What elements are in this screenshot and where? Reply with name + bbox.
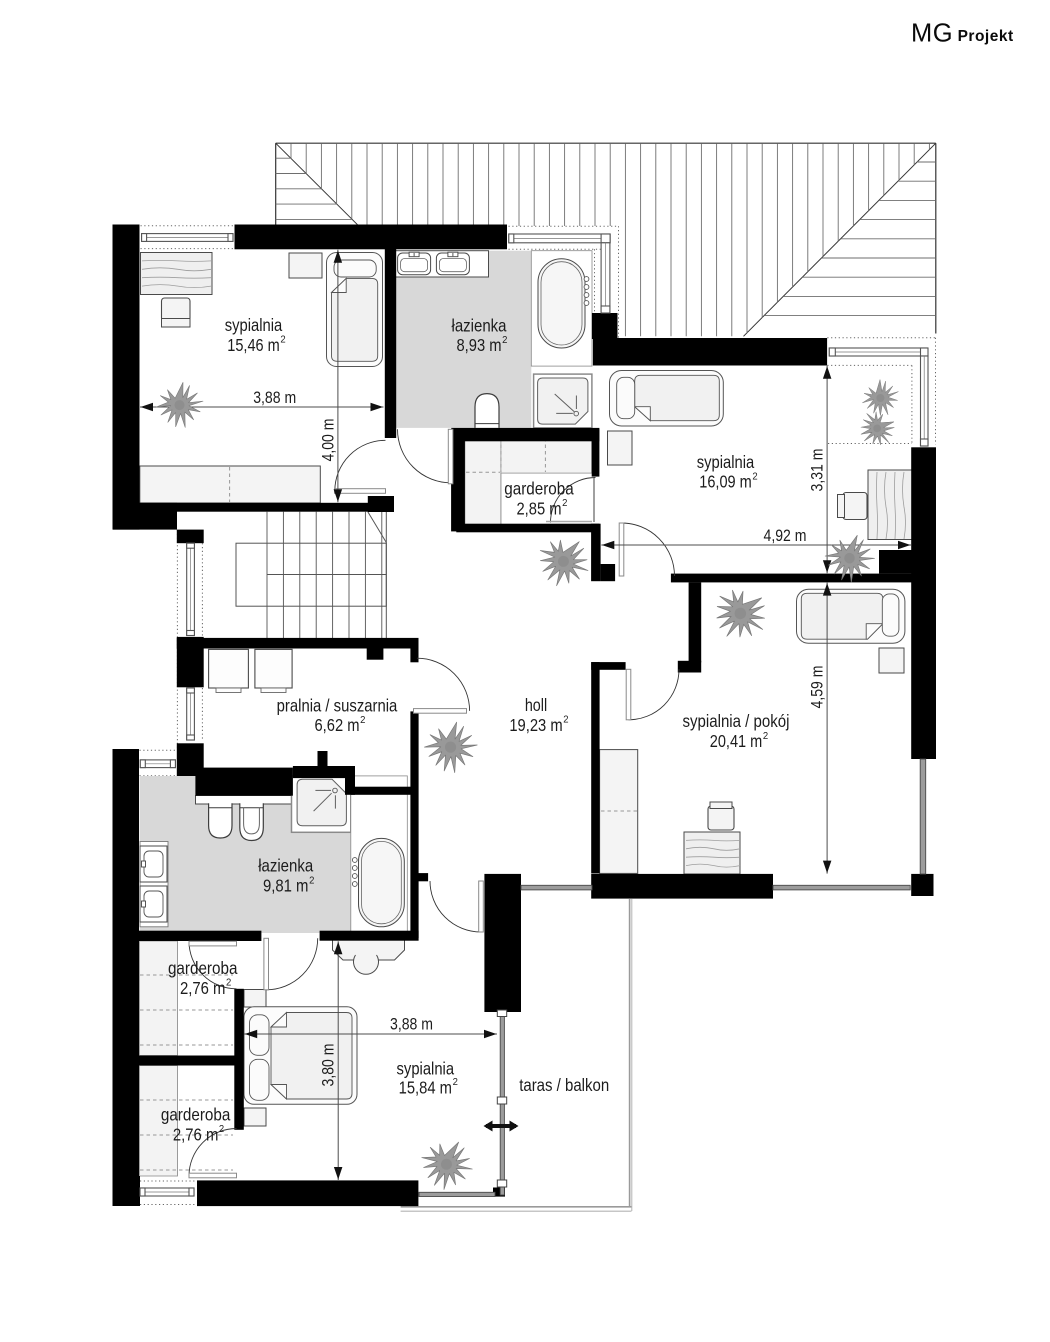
svg-text:2: 2 xyxy=(226,977,231,989)
svg-text:pralnia / suszarnia: pralnia / suszarnia xyxy=(277,695,398,715)
svg-text:4,92 m: 4,92 m xyxy=(764,526,807,545)
svg-text:15,46 m: 15,46 m xyxy=(227,335,280,355)
svg-text:2,76 m: 2,76 m xyxy=(173,1124,219,1144)
svg-text:19,23 m: 19,23 m xyxy=(509,715,562,735)
svg-text:20,41 m: 20,41 m xyxy=(710,731,763,751)
svg-text:4,59 m: 4,59 m xyxy=(807,666,826,709)
svg-text:9,81 m: 9,81 m xyxy=(263,876,309,896)
svg-text:2: 2 xyxy=(752,470,757,482)
svg-text:sypialnia: sypialnia xyxy=(397,1058,455,1078)
svg-text:łazienka: łazienka xyxy=(258,856,313,876)
svg-text:3,80 m: 3,80 m xyxy=(319,1044,338,1087)
svg-text:taras / balkon: taras / balkon xyxy=(519,1075,609,1095)
svg-text:2: 2 xyxy=(763,730,768,742)
svg-text:15,84 m: 15,84 m xyxy=(399,1077,452,1097)
svg-text:2: 2 xyxy=(309,874,314,886)
svg-text:sypialnia: sypialnia xyxy=(225,315,283,335)
svg-text:2,85 m: 2,85 m xyxy=(517,498,562,518)
svg-text:2: 2 xyxy=(219,1123,224,1135)
svg-text:16,09 m: 16,09 m xyxy=(699,472,752,492)
svg-text:2: 2 xyxy=(280,334,285,346)
svg-text:holl: holl xyxy=(525,695,547,715)
svg-text:2: 2 xyxy=(360,714,365,726)
svg-text:garderoba: garderoba xyxy=(161,1105,231,1125)
svg-text:2: 2 xyxy=(563,714,568,726)
svg-text:2: 2 xyxy=(562,497,567,509)
svg-text:8,93 m: 8,93 m xyxy=(457,335,502,355)
svg-text:łazienka: łazienka xyxy=(452,315,507,335)
svg-text:4,00 m: 4,00 m xyxy=(318,419,337,462)
svg-text:3,31 m: 3,31 m xyxy=(807,449,826,492)
svg-text:2: 2 xyxy=(502,334,507,346)
svg-text:garderoba: garderoba xyxy=(504,479,574,499)
svg-text:garderoba: garderoba xyxy=(168,958,238,978)
svg-text:2: 2 xyxy=(453,1076,458,1088)
svg-text:2,76 m: 2,76 m xyxy=(180,978,226,998)
svg-text:sypialnia / pokój: sypialnia / pokój xyxy=(683,711,790,731)
svg-text:sypialnia: sypialnia xyxy=(697,452,755,472)
svg-text:3,88 m: 3,88 m xyxy=(390,1015,433,1034)
svg-text:3,88 m: 3,88 m xyxy=(253,388,296,407)
svg-text:6,62 m: 6,62 m xyxy=(315,715,360,735)
